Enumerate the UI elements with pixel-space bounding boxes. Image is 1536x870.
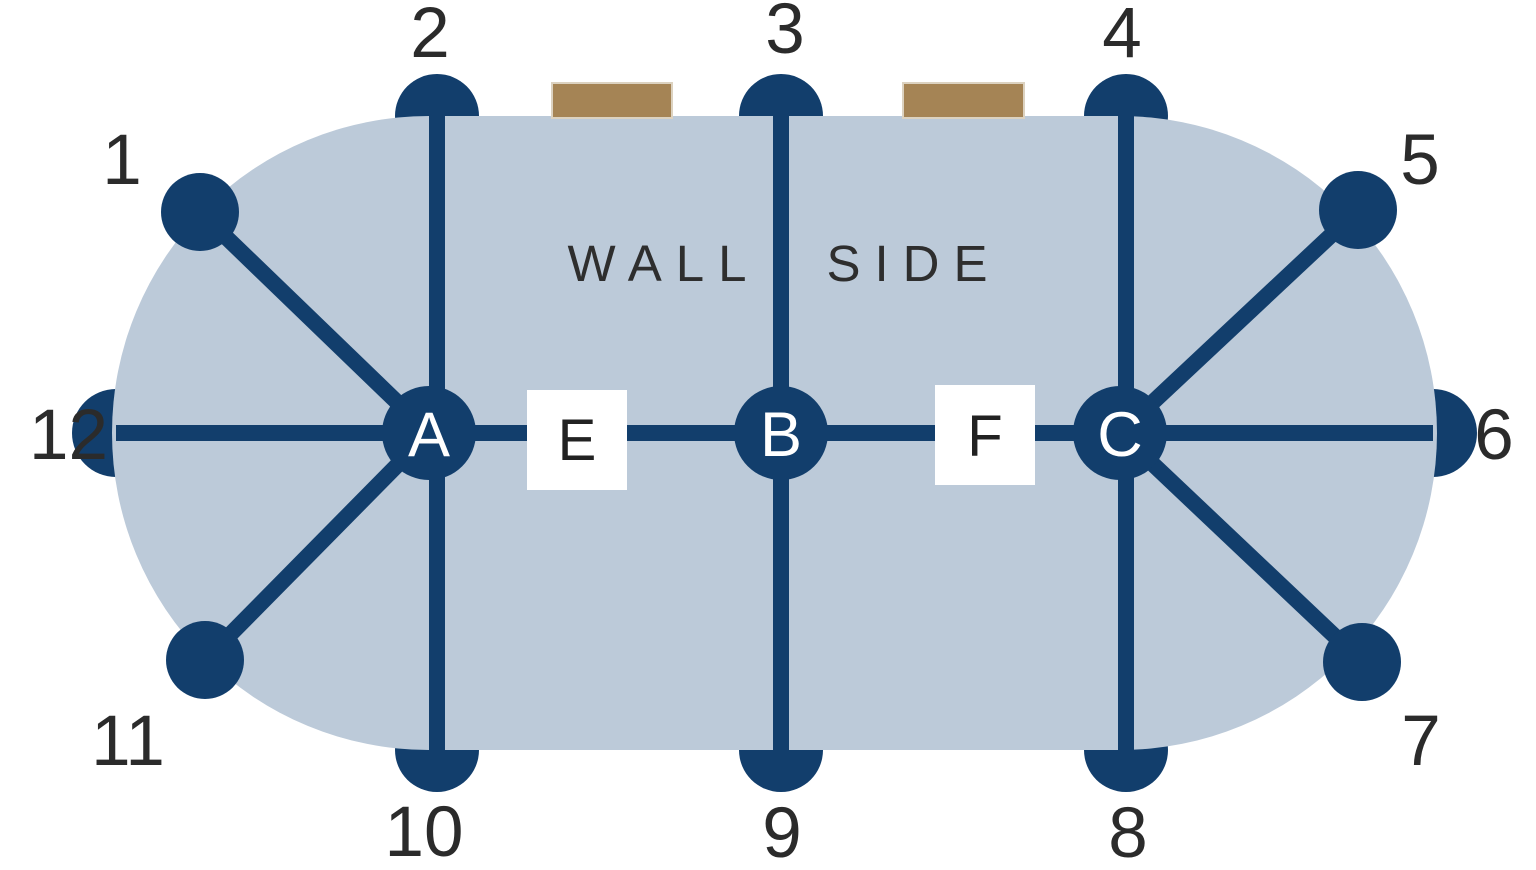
seat-1-chair (161, 173, 239, 251)
seating-diagram-canvas: E F A B C WALL SIDE 1 2 3 4 5 (0, 0, 1536, 870)
seat-12-label: 12 (29, 396, 108, 475)
hub-c-label: C (1097, 400, 1143, 470)
seat-3-label: 3 (765, 0, 805, 69)
wall-side-right-word: SIDE (826, 235, 1001, 292)
connector-f-label: F (967, 404, 1002, 469)
seat-6-label: 6 (1474, 396, 1514, 475)
wall-side-left-word: WALL (568, 235, 761, 292)
seat-7-label: 7 (1401, 702, 1441, 781)
table-seating-diagram: E F A B C WALL SIDE 1 2 3 4 5 (0, 0, 1536, 870)
hub-b-label: B (760, 400, 802, 470)
wall-marker-1 (552, 83, 672, 118)
seat-10-label: 10 (385, 793, 464, 870)
connector-e-label: E (558, 408, 597, 473)
seat-5-label: 5 (1400, 121, 1440, 200)
seat-11-chair (166, 621, 244, 699)
hub-a-label: A (408, 400, 450, 470)
seat-4-label: 4 (1102, 0, 1142, 73)
seat-8-label: 8 (1108, 794, 1148, 870)
seat-5-chair (1319, 171, 1397, 249)
seat-1-label: 1 (102, 121, 142, 200)
seat-11-label: 11 (91, 702, 165, 781)
seat-2-label: 2 (410, 0, 450, 73)
seat-7-chair (1323, 623, 1401, 701)
seat-9-label: 9 (762, 794, 802, 870)
wall-marker-2 (903, 83, 1024, 118)
